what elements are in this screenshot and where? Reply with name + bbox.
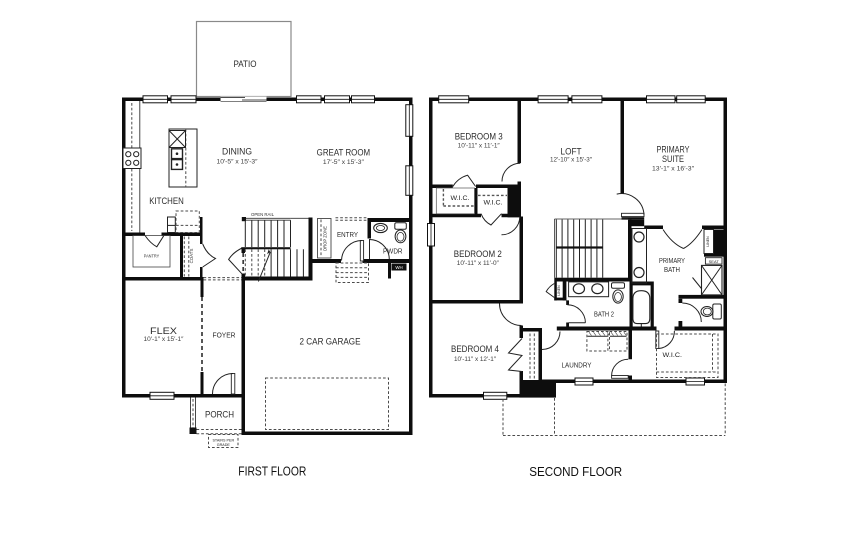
svg-text:STAIRS PER: STAIRS PER bbox=[212, 439, 234, 443]
svg-text:PWDR: PWDR bbox=[383, 247, 403, 256]
svg-text:10′-11″ x 12′-1″: 10′-11″ x 12′-1″ bbox=[454, 356, 497, 363]
svg-text:COATS: COATS bbox=[189, 249, 194, 264]
svg-text:SEAT: SEAT bbox=[709, 259, 720, 264]
svg-text:DINING: DINING bbox=[222, 147, 252, 158]
svg-text:LAUNDRY: LAUNDRY bbox=[562, 361, 592, 370]
svg-text:PRIMARY: PRIMARY bbox=[659, 256, 685, 265]
svg-text:WH: WH bbox=[395, 265, 402, 270]
svg-text:BEDROOM 2: BEDROOM 2 bbox=[454, 249, 502, 260]
svg-text:17′-5″ x 15′-3″: 17′-5″ x 15′-3″ bbox=[323, 159, 365, 166]
svg-text:10′-11″ x 11′-1″: 10′-11″ x 11′-1″ bbox=[458, 143, 501, 150]
svg-text:13′-1″ x 16′-3″: 13′-1″ x 16′-3″ bbox=[652, 166, 695, 173]
svg-text:BEDROOM 3: BEDROOM 3 bbox=[455, 132, 503, 143]
svg-text:OPEN RAIL: OPEN RAIL bbox=[251, 212, 275, 217]
svg-text:FOYER: FOYER bbox=[213, 331, 236, 340]
svg-text:GREAT ROOM: GREAT ROOM bbox=[317, 147, 371, 158]
svg-text:W.I.C.: W.I.C. bbox=[663, 352, 683, 359]
svg-text:SECOND FLOOR: SECOND FLOOR bbox=[529, 464, 622, 479]
svg-text:PORCH: PORCH bbox=[205, 409, 234, 420]
svg-text:LINEN: LINEN bbox=[557, 285, 561, 296]
svg-text:12′-10″ x 15′-3″: 12′-10″ x 15′-3″ bbox=[550, 156, 593, 163]
svg-text:10′-11″ x 11′-0″: 10′-11″ x 11′-0″ bbox=[457, 260, 500, 267]
svg-text:FIRST FLOOR: FIRST FLOOR bbox=[238, 464, 306, 479]
svg-text:ENTRY: ENTRY bbox=[337, 230, 358, 239]
svg-text:PATIO: PATIO bbox=[234, 59, 257, 70]
svg-text:SUITE: SUITE bbox=[662, 154, 684, 165]
svg-text:BATH 2: BATH 2 bbox=[594, 310, 614, 319]
svg-text:10′-1″ x 15′-1″: 10′-1″ x 15′-1″ bbox=[144, 336, 185, 343]
svg-text:10′-5″ x 15′-3″: 10′-5″ x 15′-3″ bbox=[217, 159, 259, 166]
svg-text:W.I.C.: W.I.C. bbox=[484, 200, 503, 207]
svg-text:LINEN: LINEN bbox=[706, 236, 710, 247]
svg-text:DROP ZONE: DROP ZONE bbox=[323, 226, 328, 251]
svg-text:PANTRY: PANTRY bbox=[144, 254, 160, 259]
svg-text:KITCHEN: KITCHEN bbox=[149, 196, 184, 207]
svg-text:GRADE: GRADE bbox=[217, 443, 231, 447]
svg-text:2 CAR GARAGE: 2 CAR GARAGE bbox=[300, 337, 361, 348]
svg-text:BATH: BATH bbox=[664, 265, 680, 274]
svg-text:W.I.C.: W.I.C. bbox=[451, 195, 470, 202]
svg-text:BEDROOM 4: BEDROOM 4 bbox=[451, 344, 500, 355]
